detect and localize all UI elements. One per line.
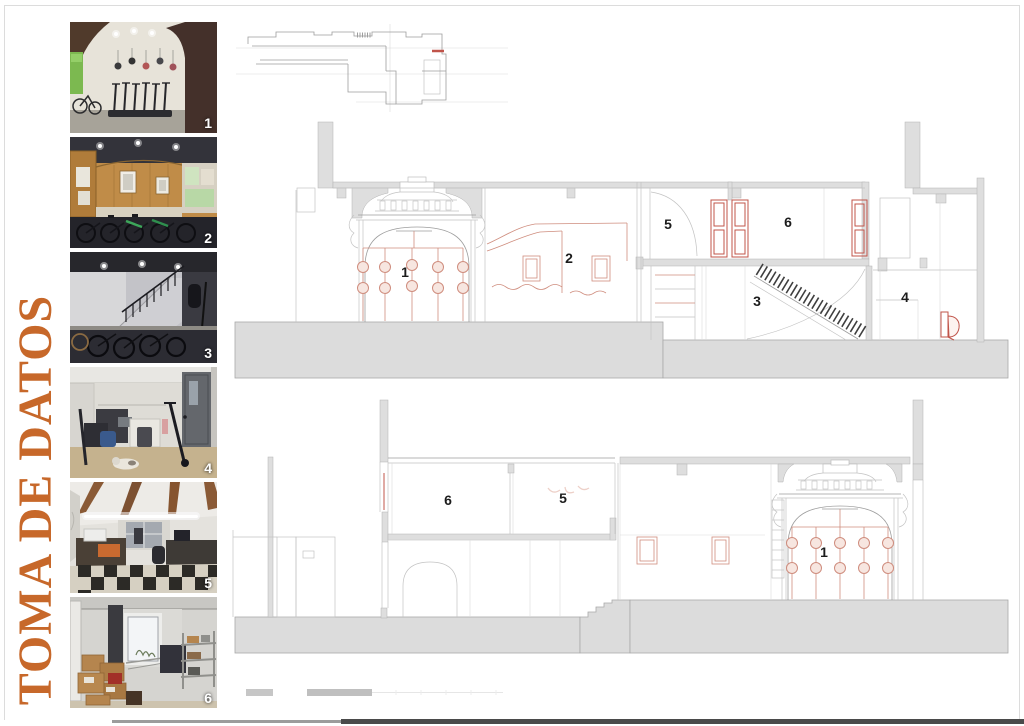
room-label: 4 bbox=[901, 289, 909, 305]
photo-1-scene bbox=[70, 22, 217, 133]
scale-bar bbox=[236, 686, 516, 700]
photo-number-badge: 6 bbox=[204, 690, 212, 706]
room-label: 1 bbox=[820, 544, 828, 560]
photo-thumbnail-6: 6 bbox=[70, 597, 217, 708]
lower-section-drawing: 6 5 1 bbox=[230, 390, 1010, 660]
room-label: 5 bbox=[664, 216, 672, 232]
photo-number-badge: 1 bbox=[204, 115, 212, 131]
photo-6-scene bbox=[70, 597, 217, 708]
footer-rule-light bbox=[112, 720, 341, 723]
photo-thumbnail-4: 4 bbox=[70, 367, 217, 478]
photo-2-scene bbox=[70, 137, 217, 248]
photo-5-scene bbox=[70, 482, 217, 593]
photo-thumbnail-2: 2 bbox=[70, 137, 217, 248]
photo-thumbnail-3: 3 bbox=[70, 252, 217, 363]
lower-red-frames bbox=[548, 486, 729, 564]
photo-thumbnail-1: 1 bbox=[70, 22, 217, 133]
photo-strip: 1 bbox=[70, 22, 217, 708]
lower-room-1-rack-red bbox=[787, 509, 894, 599]
photo-number-badge: 3 bbox=[204, 345, 212, 361]
key-plan bbox=[236, 24, 508, 112]
room-label: 6 bbox=[444, 492, 452, 508]
photo-thumbnail-5: 5 bbox=[70, 482, 217, 593]
room-4-toilet bbox=[876, 270, 959, 340]
lower-room-labels: 6 5 1 bbox=[444, 490, 828, 560]
room-2-red-outlines bbox=[487, 223, 627, 295]
photo-number-badge: 4 bbox=[204, 460, 212, 476]
photo-4-scene bbox=[70, 367, 217, 478]
room-5-door-arc bbox=[651, 192, 697, 256]
room-1-rack-red bbox=[358, 231, 469, 321]
photo-number-badge: 2 bbox=[204, 230, 212, 246]
presentation-board: TOMA DE DATOS bbox=[0, 0, 1024, 726]
photo-3-scene bbox=[70, 252, 217, 363]
room-label: 6 bbox=[784, 214, 792, 230]
room-label: 3 bbox=[753, 293, 761, 309]
key-plan-walls bbox=[248, 32, 446, 104]
lower-ground bbox=[235, 600, 1008, 653]
photo-number-badge: 5 bbox=[204, 575, 212, 591]
footer-rule-dark bbox=[341, 719, 1024, 724]
room-label: 5 bbox=[559, 490, 567, 506]
upper-ground bbox=[235, 322, 1008, 378]
board-title: TOMA DE DATOS bbox=[8, 285, 64, 715]
room-label: 2 bbox=[565, 250, 573, 266]
upper-section-drawing: 1 2 5 6 3 4 bbox=[230, 115, 1010, 385]
room-label: 1 bbox=[401, 264, 409, 280]
